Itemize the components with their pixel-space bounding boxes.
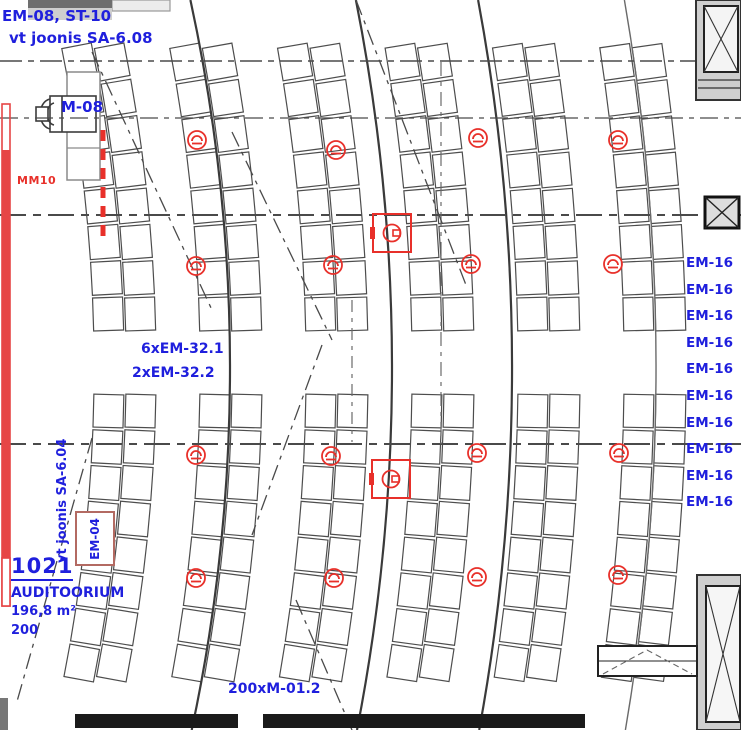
em04-label: EM-04 (89, 518, 101, 560)
door-lintel (598, 646, 697, 676)
side-ref-label: vt joonis SA-6.04 (56, 413, 69, 563)
em16-label: EM-16 (686, 303, 741, 330)
mid-note1-label: 6xEM-32.1 (141, 342, 224, 356)
em16-label: EM-16 (686, 383, 741, 410)
room-capacity: 200 (11, 624, 38, 637)
room-number: 1021 (11, 556, 73, 581)
shaft-bottom-right (697, 575, 741, 730)
speaker-symbol (604, 255, 622, 273)
shaft-top-right (696, 0, 741, 100)
em16-label: EM-16 (686, 356, 741, 383)
em16-label: EM-16 (686, 250, 741, 277)
seat-type-label: 200xM-01.2 (228, 682, 321, 696)
fan-tag-label: M-08 (61, 100, 103, 115)
em16-label: EM-16 (686, 463, 741, 490)
em16-label: EM-16 (686, 410, 741, 437)
junction-box-symbol (370, 214, 411, 252)
em04-box: EM-04 (75, 511, 115, 566)
top-left-note-label: vt joonis SA-6.08 (9, 31, 153, 46)
em16-list: EM-16EM-16EM-16EM-16EM-16EM-16EM-16EM-16… (686, 250, 741, 516)
floor-plan: EM-08, ST-10 vt joonis SA-6.08 M-08 MM10… (0, 0, 741, 730)
room-name: AUDITOORIUM (11, 586, 124, 600)
mid-note2-label: 2xEM-32.2 (132, 366, 215, 380)
top-left-ref-label: EM-08, ST-10 (2, 9, 111, 24)
bottom-wall (0, 698, 585, 730)
duct-tag-label: MM10 (17, 175, 56, 186)
shaft-right-small (705, 197, 739, 228)
em16-label: EM-16 (686, 330, 741, 357)
em16-label: EM-16 (686, 489, 741, 516)
room-area: 196,8 m² (11, 605, 76, 618)
em16-label: EM-16 (686, 277, 741, 304)
top-wall-light-segment (112, 0, 170, 11)
em16-label: EM-16 (686, 436, 741, 463)
floor-plan-svg (0, 0, 741, 730)
speaker-symbol (469, 129, 487, 147)
speaker-symbol (468, 568, 486, 586)
seating-rows (62, 43, 686, 682)
